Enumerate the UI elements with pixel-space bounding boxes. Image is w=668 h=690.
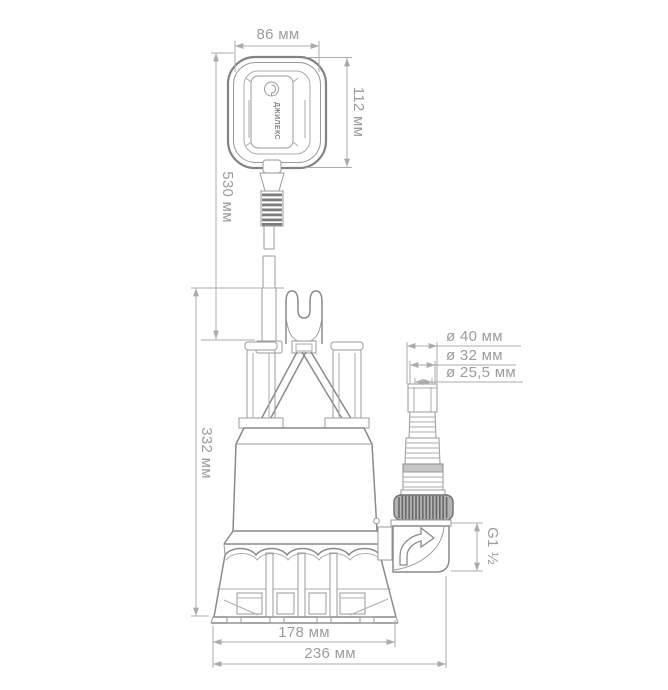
adapter-top-tube (408, 384, 437, 412)
strainer-base (211, 544, 398, 623)
dim-hose-25: ø 25,5 мм (415, 364, 523, 384)
skirt-feet-windows (237, 593, 365, 614)
plate-corner-tick (293, 78, 298, 82)
dim-hose-25-label: ø 25,5 мм (446, 364, 516, 381)
cable-strain-relief (261, 191, 283, 226)
cable-upper-segment (264, 226, 274, 249)
handle-hook-bowl (286, 316, 322, 341)
carry-handle (239, 291, 369, 428)
dim-float-width-label: 86 мм (257, 26, 300, 43)
dim-float-width: 86 мм (235, 26, 319, 72)
handle-strut-left (258, 352, 306, 425)
dim-float-height: 112 мм (306, 58, 367, 168)
handle-strut-right (302, 352, 355, 425)
float-cable (256, 173, 284, 353)
dim-outlet-thread: G1 ½ (451, 523, 501, 571)
coupling-nut (394, 495, 453, 520)
skirt-shading (224, 600, 258, 615)
pump-dimension-drawing: ДЖИЛЕКС (0, 0, 668, 690)
outlet-screw (374, 518, 380, 524)
skirt-scallops-inner (226, 554, 381, 560)
dim-hose-40-label: ø 40 мм (446, 328, 503, 345)
adapter-step-32 (405, 438, 440, 464)
dim-outlet-thread-label: G1 ½ (484, 527, 501, 565)
skirt-rib (266, 553, 273, 617)
base-feet (211, 617, 398, 623)
drawing-canvas: ДЖИЛЕКС (0, 0, 668, 690)
skirt-side-left (214, 555, 225, 617)
body-ledge (224, 531, 389, 544)
pump-upper-body (233, 428, 377, 531)
dim-hose-32-label: ø 32 мм (446, 347, 503, 364)
pump-body (224, 428, 389, 544)
plate-corner-tick (246, 78, 251, 82)
brand-label: ДЖИЛЕКС (273, 102, 280, 140)
handle-post-left (239, 342, 283, 428)
cable-gland-tab (263, 160, 281, 173)
dim-pump-height-label: 332 мм (198, 427, 215, 479)
skirt-join-left (224, 544, 225, 555)
hose-adapter (378, 384, 453, 572)
adapter-step-40 (401, 464, 445, 495)
dim-overall-width-label: 236 мм (304, 645, 356, 662)
plate-corner-tick (246, 142, 251, 146)
elbow-flange (391, 520, 451, 526)
dim-float-height-label: 112 мм (350, 87, 367, 138)
cable-lower-segment (263, 256, 275, 288)
float-switch: ДЖИЛЕКС (228, 57, 326, 173)
plate-corner-tick (293, 142, 298, 146)
outlet-elbow (391, 520, 451, 572)
outlet-port (378, 527, 392, 560)
skirt-rib (330, 553, 337, 617)
cable-clamp (262, 288, 276, 341)
skirt-rib (298, 553, 305, 617)
adapter-step-25 (409, 412, 436, 438)
brand-plate (251, 76, 293, 148)
dim-base-width-label: 178 мм (278, 624, 330, 641)
skirt-shading (350, 599, 388, 615)
cable-gland-cone (260, 173, 284, 191)
dim-cable-length-label: 530 мм (219, 171, 236, 223)
